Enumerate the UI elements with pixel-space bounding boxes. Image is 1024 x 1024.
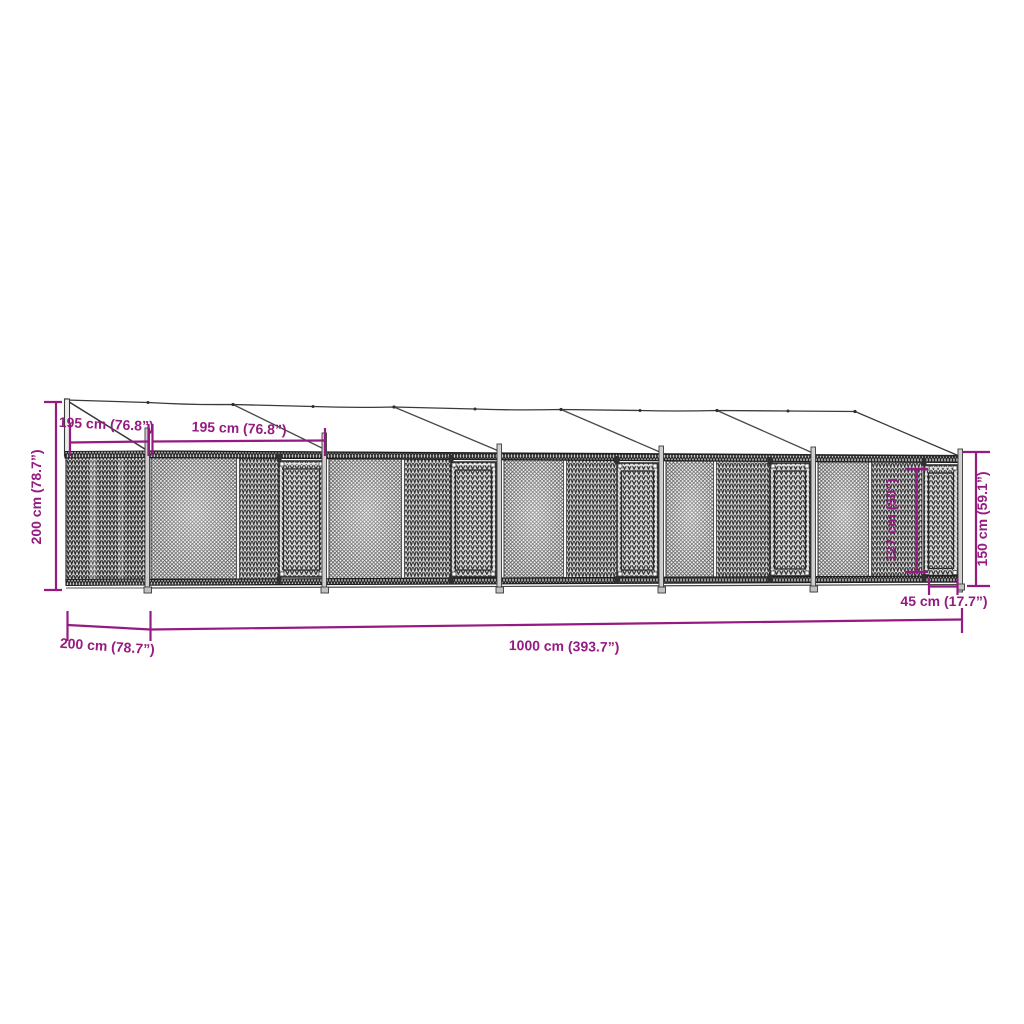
svg-text:150 cm (59.1”): 150 cm (59.1”)	[974, 472, 990, 567]
svg-text:200 cm (78.7”): 200 cm (78.7”)	[28, 450, 44, 545]
svg-text:45 cm (17.7”): 45 cm (17.7”)	[900, 593, 987, 609]
svg-text:195 cm (76.8”): 195 cm (76.8”)	[58, 414, 154, 434]
svg-text:127 cm (50”): 127 cm (50”)	[883, 478, 899, 561]
svg-text:195 cm (76.8”): 195 cm (76.8”)	[191, 418, 286, 437]
svg-text:1000 cm (393.7”): 1000 cm (393.7”)	[509, 637, 620, 655]
svg-text:200 cm (78.7”): 200 cm (78.7”)	[59, 635, 155, 658]
